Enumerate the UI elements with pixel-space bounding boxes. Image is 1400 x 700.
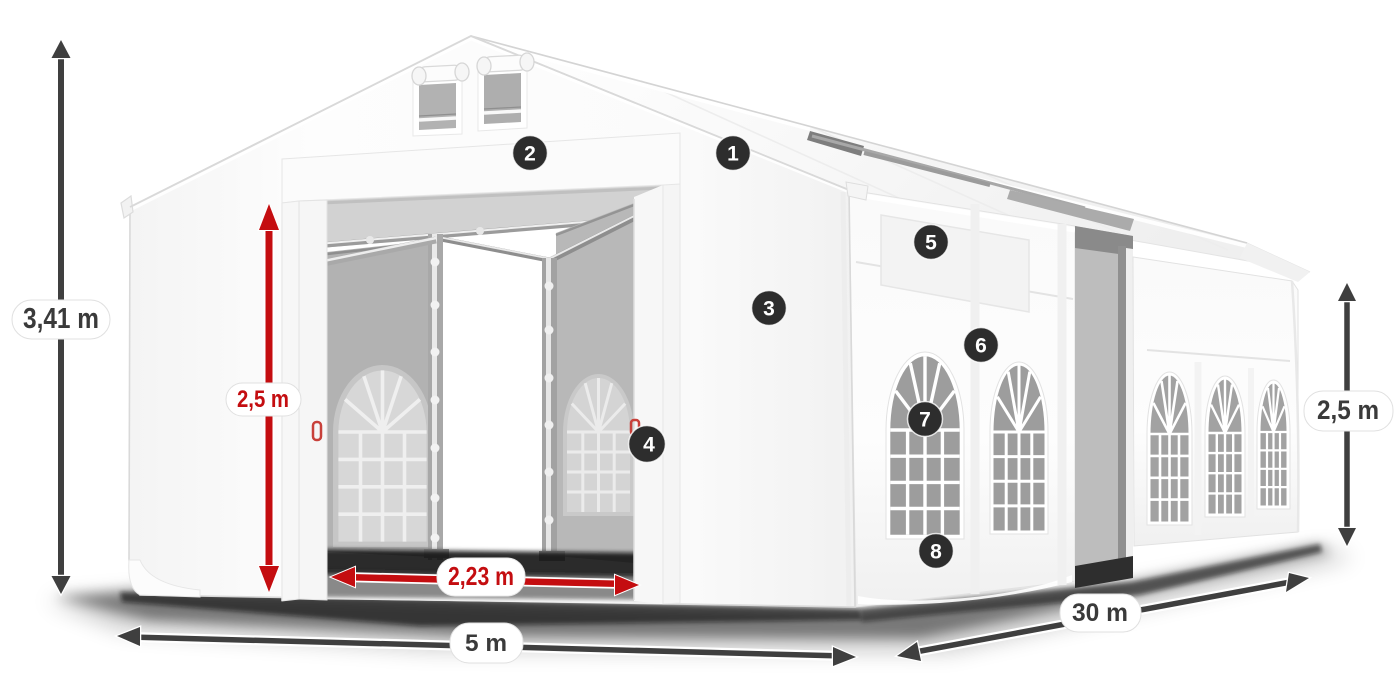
svg-text:2: 2 bbox=[524, 143, 536, 166]
svg-text:5: 5 bbox=[925, 232, 937, 255]
svg-text:8: 8 bbox=[930, 541, 942, 564]
svg-text:30 m: 30 m bbox=[1072, 599, 1128, 627]
svg-text:3,41 m: 3,41 m bbox=[23, 303, 99, 335]
svg-text:4: 4 bbox=[643, 434, 655, 457]
svg-text:2,5 m: 2,5 m bbox=[237, 386, 289, 413]
svg-text:6: 6 bbox=[975, 335, 987, 358]
svg-text:7: 7 bbox=[919, 409, 931, 432]
svg-text:1: 1 bbox=[727, 143, 739, 166]
svg-text:5 m: 5 m bbox=[465, 630, 507, 657]
svg-text:2,5 m: 2,5 m bbox=[1317, 395, 1379, 425]
svg-text:3: 3 bbox=[763, 298, 775, 321]
svg-text:2,23 m: 2,23 m bbox=[448, 561, 514, 591]
